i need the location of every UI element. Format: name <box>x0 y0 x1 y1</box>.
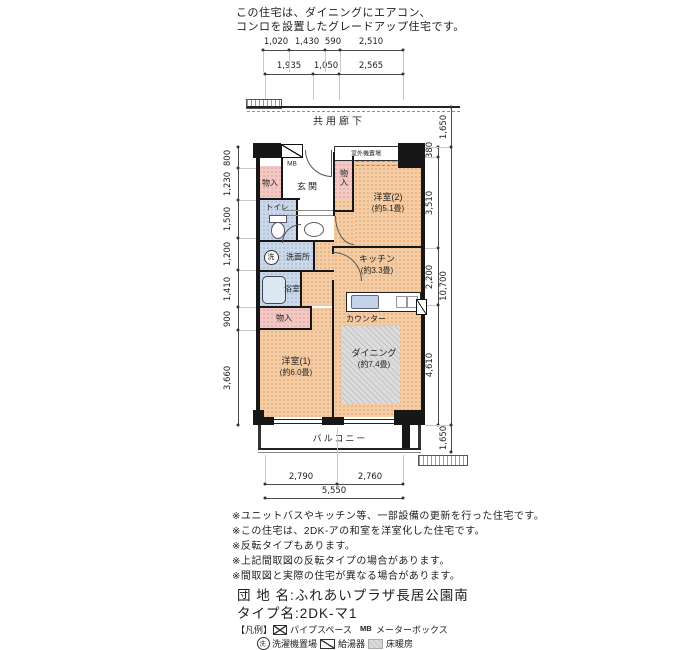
dim-top: 2,510 <box>359 37 383 47</box>
kitchen-sink-icon <box>351 295 379 309</box>
hallway <box>302 272 334 306</box>
balcony-rail <box>258 448 421 450</box>
dim-top: 1,020 <box>264 37 288 47</box>
header-line2: コンロを設置したグレードアップ住宅です。 <box>236 18 465 34</box>
western2-label: 洋室(2) (約5.1畳) <box>372 190 404 214</box>
closet-top-label: 物入 <box>262 178 278 189</box>
balcony-rail <box>258 452 421 453</box>
note-line: ※間取図と実際の住宅が異なる場合があります。 <box>232 567 460 582</box>
counter-label: カウンター <box>346 314 386 325</box>
dim-top: 1,050 <box>314 61 338 71</box>
dim-left: 1,410 <box>223 277 233 301</box>
stove-icon <box>396 296 407 308</box>
hallway <box>312 308 334 330</box>
floor-plan-page: この住宅は、ダイニングにエアコン、 コンロを設置したグレードアップ住宅です。 1… <box>0 0 700 650</box>
balcony-label: バルコニー <box>313 432 368 445</box>
legend-floor-heating: 床暖房 <box>386 637 413 650</box>
dim-left: 1,500 <box>223 207 233 231</box>
dim-top: 2,565 <box>359 61 383 71</box>
legend-washer-place: 洗濯機置場 <box>272 637 317 650</box>
type-name: タイプ名:2DK-マ1 <box>237 602 358 622</box>
dim-bottom: 2,760 <box>358 472 382 482</box>
note-line: ※反転タイプもあります。 <box>232 537 355 552</box>
western1-label: 洋室(1) (約6.0畳) <box>280 354 312 378</box>
dim-corridor-depth: 1,650 <box>439 115 449 139</box>
dim-line <box>265 484 403 485</box>
dim-bottom: 2,790 <box>289 472 313 482</box>
legend-pipe-space: パイプスペース <box>290 623 352 636</box>
dining-label: ダイニング (約7.4畳) <box>351 346 396 370</box>
window <box>344 419 394 421</box>
dim-left: 3,660 <box>223 366 233 390</box>
note-line: ※この住宅は、2DK-アの和室を洋室化した住宅です。 <box>232 522 485 537</box>
dim-top: 1,430 <box>295 37 319 47</box>
kitchen-label: キッチン (約3.3畳) <box>359 252 395 276</box>
balcony-divider <box>402 425 410 449</box>
estate-name: 団 地 名:ふれあいプラザ長居公園南 <box>237 584 469 604</box>
note-line: ※上記間取図の反転タイプの場合があります。 <box>232 552 450 567</box>
corridor-label: 共用廊下 <box>313 113 365 128</box>
balcony-wall <box>258 425 261 450</box>
meter-box-label: MB <box>287 161 297 168</box>
dim-left: 1,200 <box>223 242 233 266</box>
floor-heating-icon <box>368 639 383 649</box>
dim-line <box>451 107 452 452</box>
dim-line <box>238 147 239 425</box>
washer-place-symbol: 洗 <box>268 252 275 262</box>
below-balcony-hatch <box>418 455 468 466</box>
entrance-door-leaf <box>331 150 332 176</box>
dim-right: 4,610 <box>425 353 435 377</box>
bathroom-label: 浴室 <box>284 284 300 295</box>
entrance-step <box>283 210 333 211</box>
legend-meter-box: メーターボックス <box>376 623 448 636</box>
dim-left: 900 <box>223 311 233 327</box>
note-line: ※ユニットバスやキッチン等、一部設備の更新を行った住宅です。 <box>232 507 544 522</box>
dim-left: 800 <box>223 150 233 166</box>
dim-line <box>265 498 403 499</box>
window <box>274 423 322 425</box>
wall <box>322 417 344 425</box>
window <box>274 419 322 421</box>
washroom-label: 洗面所 <box>286 252 310 263</box>
entrance-label: 玄関 <box>297 180 319 193</box>
dim-right: 3,510 <box>425 191 435 215</box>
dim-left: 1,230 <box>223 172 233 196</box>
balcony-wall <box>418 425 421 450</box>
closet-mid-label: 物入 <box>276 313 292 324</box>
dim-right: 380 <box>425 142 435 158</box>
wall <box>256 143 260 425</box>
meter-box-icon <box>281 144 303 158</box>
dim-balcony-depth: 1,650 <box>439 426 449 450</box>
window <box>344 423 394 425</box>
entrance-step <box>283 215 333 216</box>
dim-right: 2,200 <box>425 265 435 289</box>
dim-bottom-total: 5,550 <box>322 486 346 496</box>
washer-symbol: 洗 <box>260 639 266 648</box>
dim-right-total: 10,700 <box>439 271 449 301</box>
wall <box>256 417 274 425</box>
dim-top: 590 <box>325 37 341 47</box>
water-heater-icon <box>416 299 427 315</box>
toilet-label: トイレ <box>266 202 289 213</box>
pipe-space-icon <box>273 625 287 635</box>
corridor-line <box>247 106 460 108</box>
closet-side-label: 物入 <box>339 169 350 187</box>
wall <box>394 410 425 425</box>
corridor-edge-hatch <box>246 99 282 109</box>
bathtub-icon <box>262 276 286 304</box>
legend-title: 【凡例】 <box>236 623 272 636</box>
meter-box-symbol: MB <box>360 624 372 633</box>
dim-line <box>265 74 403 75</box>
legend-water-heater: 給湯器 <box>338 637 365 650</box>
washbasin-icon <box>304 222 324 237</box>
dim-line <box>263 50 403 51</box>
water-heater-icon <box>320 639 335 649</box>
outdoor-unit-label: 室外機置場 <box>351 149 381 158</box>
